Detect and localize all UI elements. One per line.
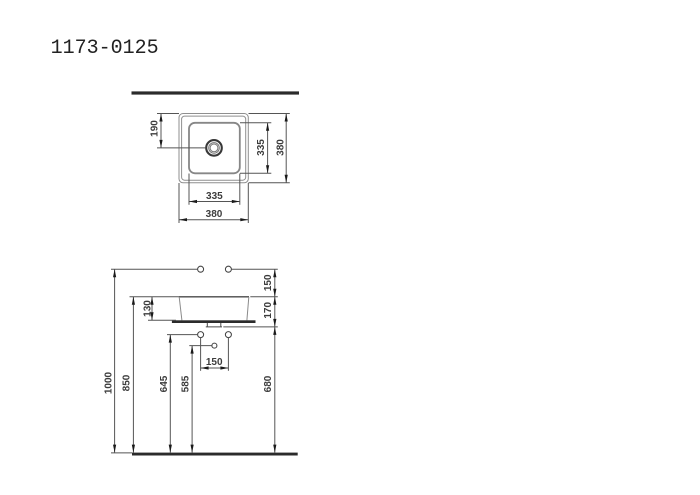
svg-text:585: 585 bbox=[180, 375, 191, 392]
svg-text:380: 380 bbox=[206, 209, 223, 220]
svg-text:130: 130 bbox=[142, 300, 153, 317]
svg-text:645: 645 bbox=[159, 375, 170, 392]
svg-text:190: 190 bbox=[150, 120, 161, 137]
svg-text:1000: 1000 bbox=[104, 371, 115, 394]
svg-text:680: 680 bbox=[263, 375, 274, 392]
svg-text:170: 170 bbox=[263, 302, 274, 319]
svg-text:1173-0125: 1173-0125 bbox=[51, 37, 159, 60]
svg-text:150: 150 bbox=[263, 274, 274, 291]
svg-text:380: 380 bbox=[275, 139, 286, 156]
svg-text:335: 335 bbox=[206, 191, 223, 202]
svg-text:335: 335 bbox=[256, 139, 267, 156]
svg-text:150: 150 bbox=[206, 357, 223, 368]
svg-text:850: 850 bbox=[122, 374, 133, 391]
